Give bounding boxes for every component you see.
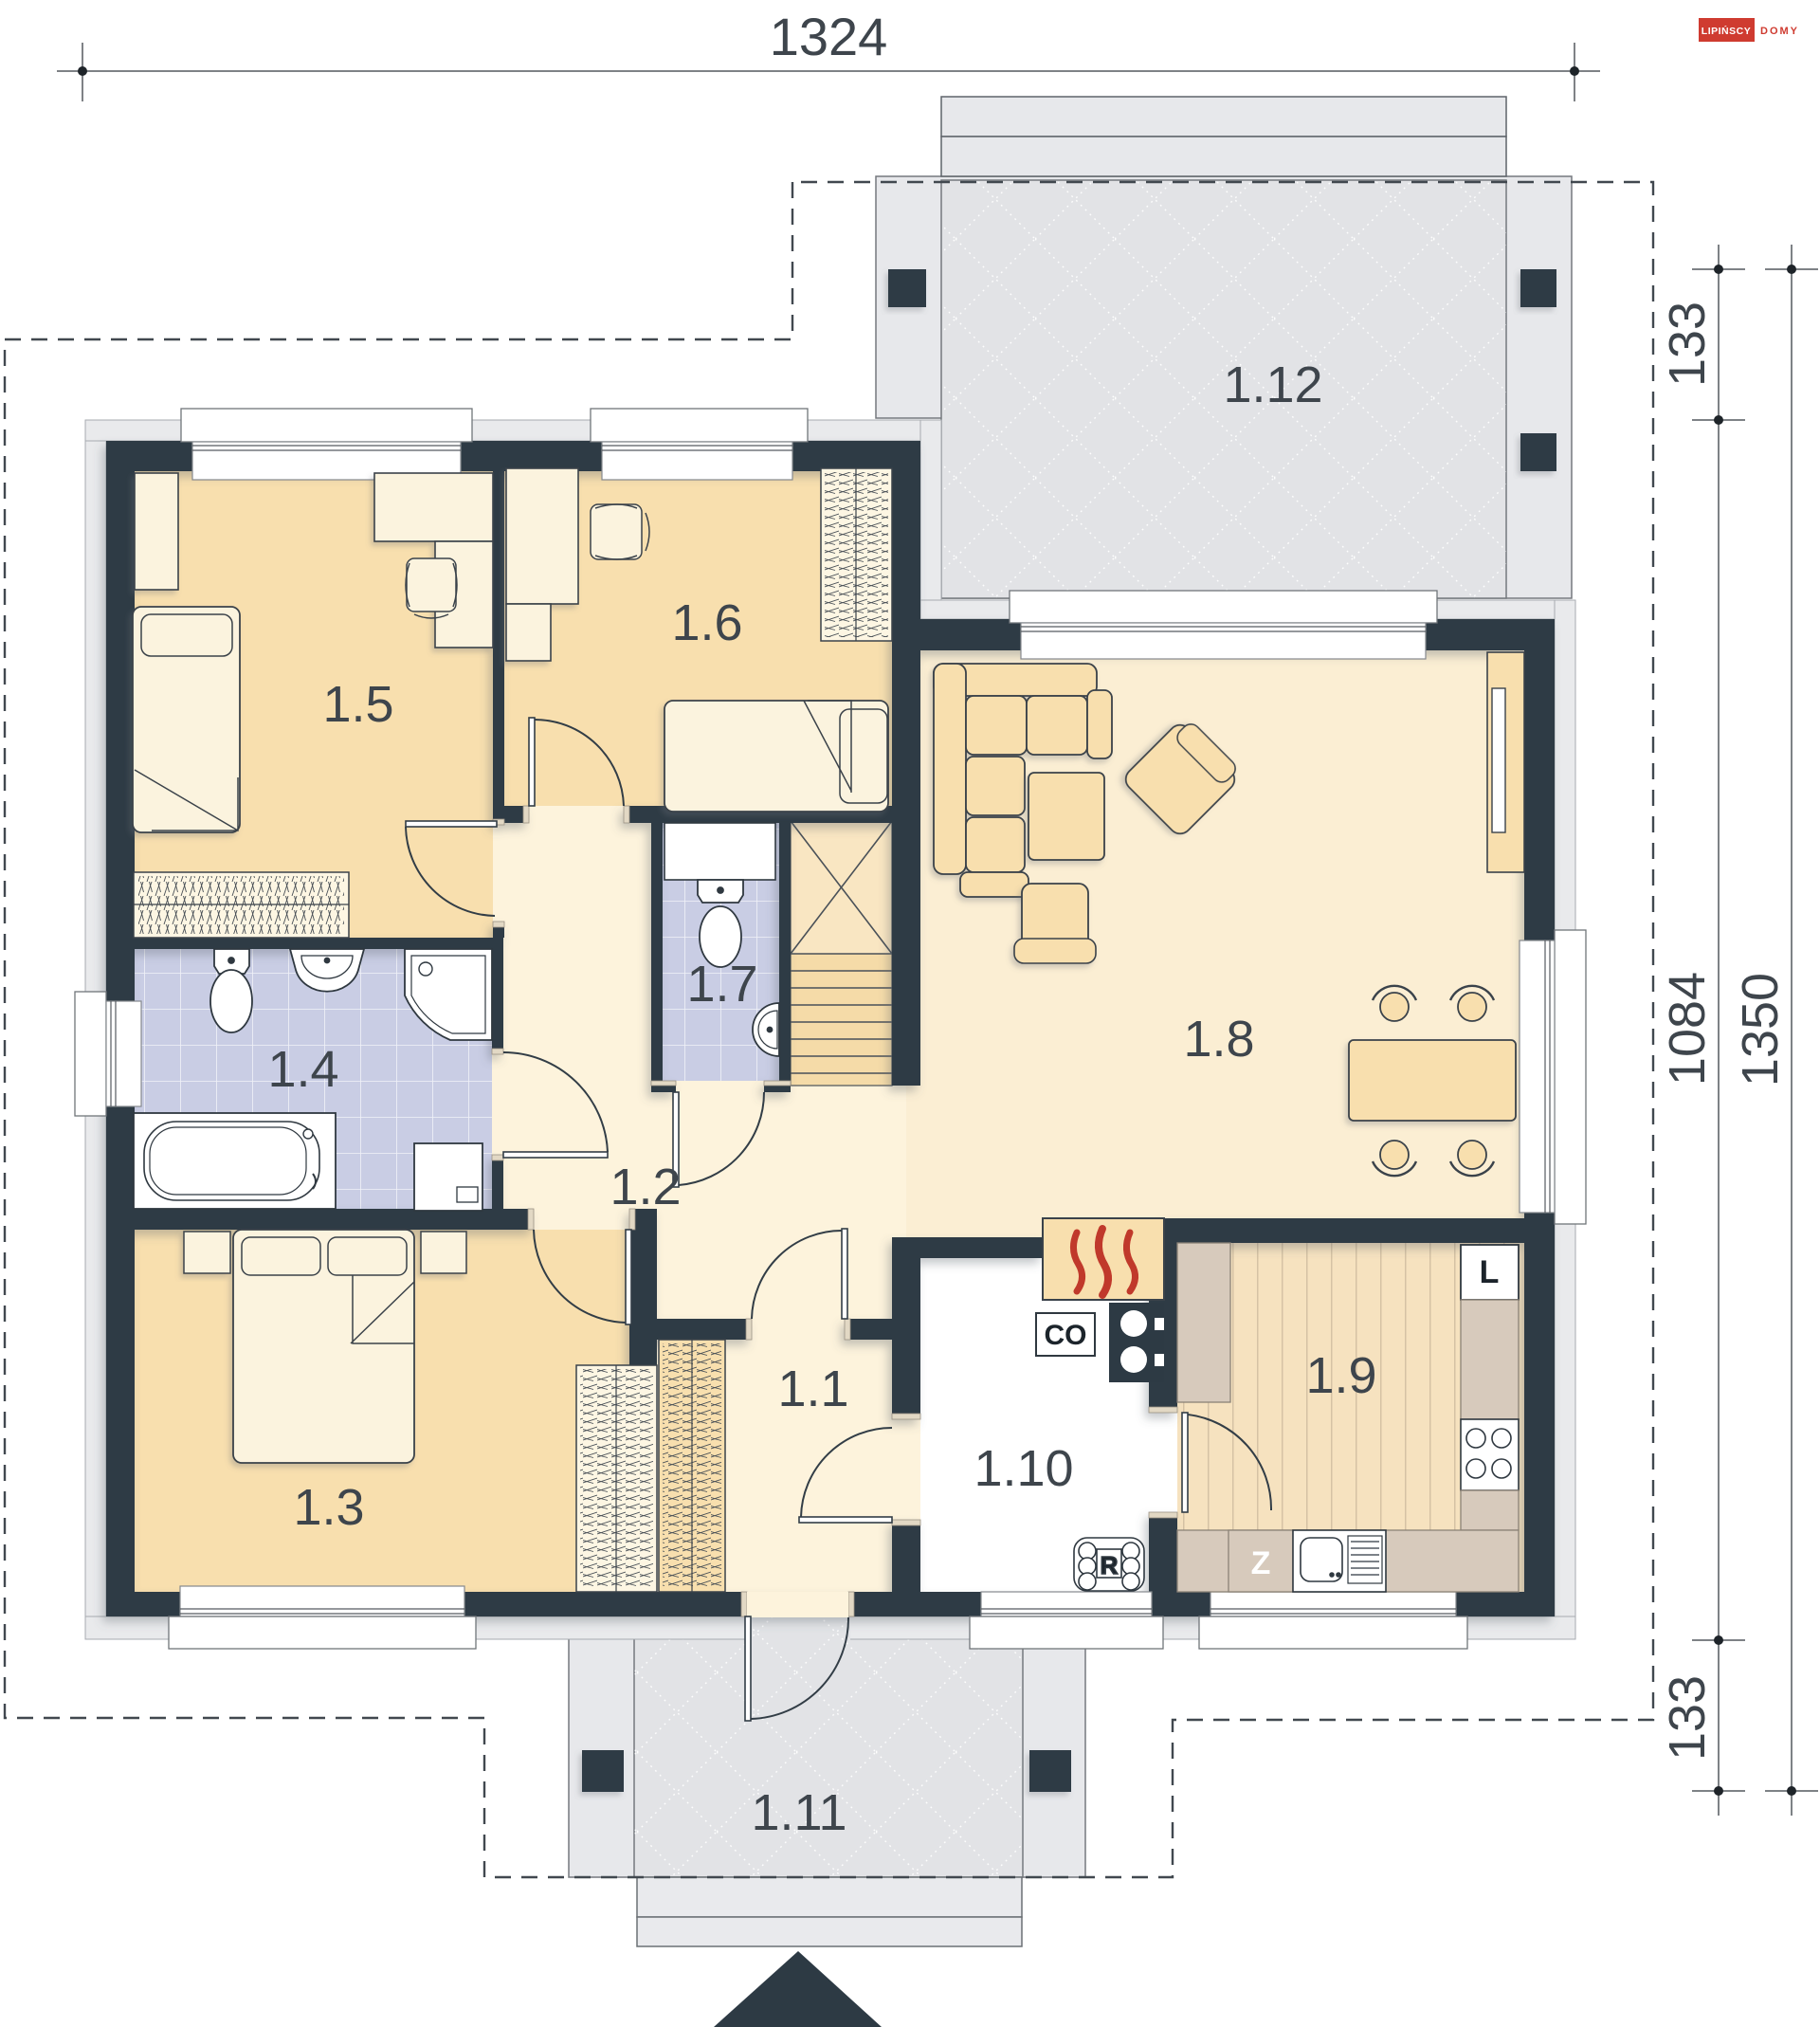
svg-text:1.11: 1.11 bbox=[751, 1784, 846, 1841]
svg-text:1.2: 1.2 bbox=[610, 1159, 681, 1215]
svg-text:R: R bbox=[1101, 1551, 1119, 1580]
svg-text:133: 133 bbox=[1659, 301, 1716, 387]
svg-text:1.10: 1.10 bbox=[974, 1440, 1073, 1497]
svg-text:1.8: 1.8 bbox=[1183, 1011, 1254, 1068]
svg-text:1.5: 1.5 bbox=[322, 676, 393, 733]
svg-text:1.7: 1.7 bbox=[686, 956, 757, 1013]
svg-text:1.3: 1.3 bbox=[293, 1479, 364, 1536]
svg-text:DOMY: DOMY bbox=[1760, 26, 1799, 37]
svg-text:1.4: 1.4 bbox=[267, 1041, 338, 1098]
svg-text:133: 133 bbox=[1659, 1675, 1716, 1761]
svg-text:L: L bbox=[1480, 1254, 1500, 1290]
svg-text:LIPIŃSCY: LIPIŃSCY bbox=[1702, 25, 1751, 37]
svg-text:1084: 1084 bbox=[1659, 972, 1716, 1086]
svg-text:1.12: 1.12 bbox=[1223, 356, 1322, 413]
svg-text:1.9: 1.9 bbox=[1305, 1347, 1376, 1404]
svg-text:1324: 1324 bbox=[770, 7, 888, 66]
svg-text:1350: 1350 bbox=[1732, 973, 1789, 1087]
svg-text:Z: Z bbox=[1251, 1545, 1271, 1581]
svg-text:CO: CO bbox=[1045, 1320, 1087, 1351]
svg-text:1.1: 1.1 bbox=[777, 1360, 848, 1417]
svg-text:1.6: 1.6 bbox=[671, 594, 742, 651]
